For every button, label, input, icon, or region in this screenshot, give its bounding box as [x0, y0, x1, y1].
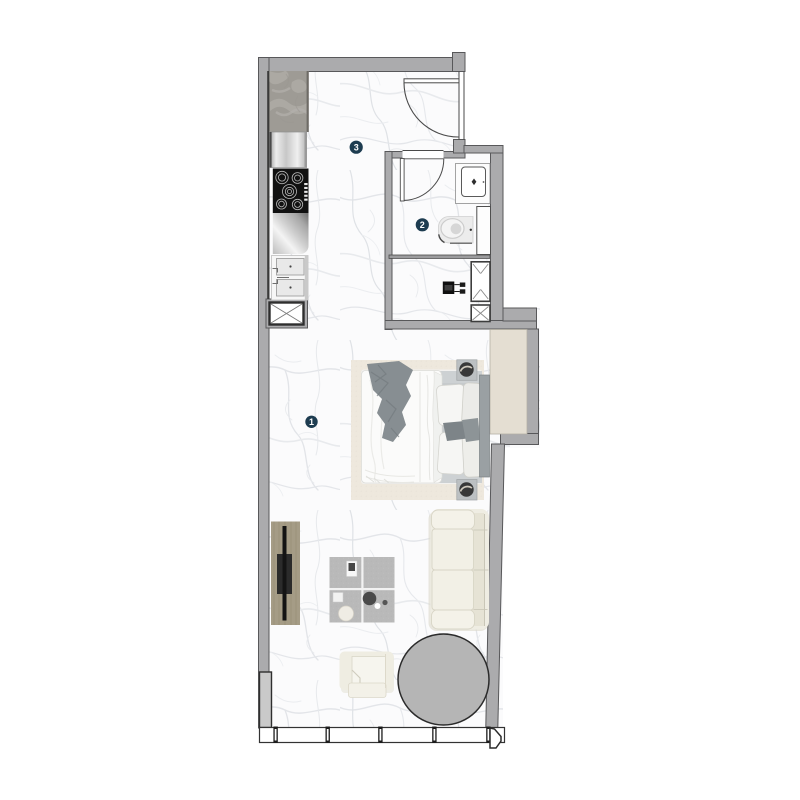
svg-text:2: 2	[420, 220, 425, 230]
svg-text:1: 1	[309, 417, 314, 427]
svg-text:3: 3	[354, 143, 359, 153]
